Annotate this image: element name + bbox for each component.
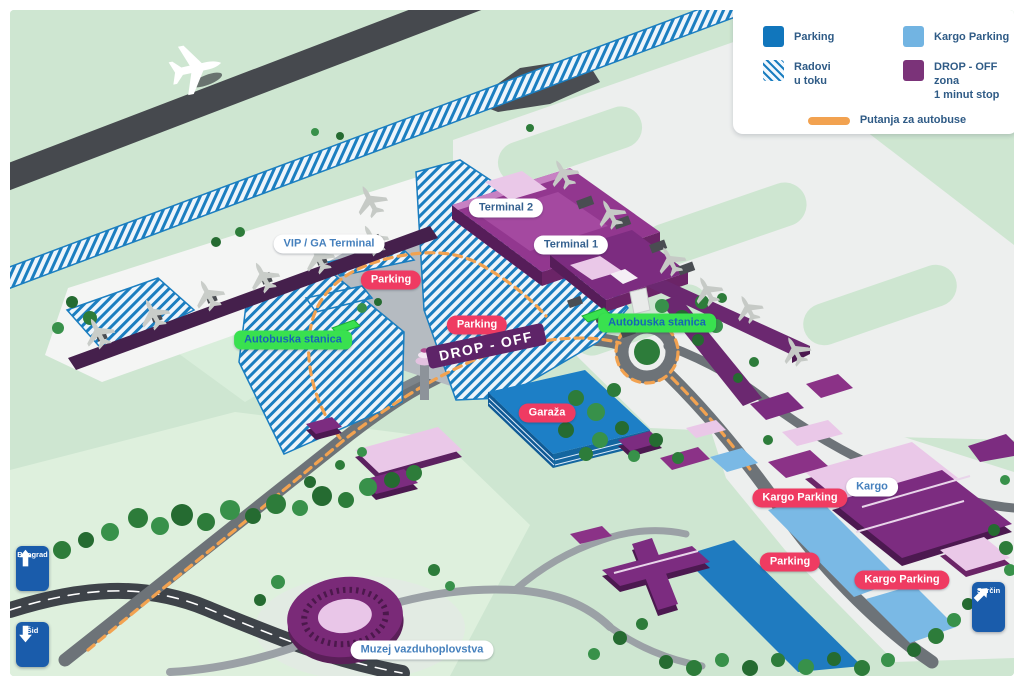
up-arrow-icon [16, 546, 35, 570]
kargo-label: Kargo [846, 478, 898, 497]
map-legend: Parking Kargo Parking Radovi u toku DROP… [733, 10, 1014, 134]
kargo-parking-swatch-icon [903, 26, 924, 47]
garage-label: Garaža [519, 404, 576, 423]
museum-label: Muzej vazduhoplovstva [351, 641, 494, 660]
parking-west-label: Parking [361, 271, 421, 290]
airport-map-page: { "legend": { "items": [ {"label": "Park… [0, 0, 1024, 689]
legend-dropoff-label: DROP - OFF zona 1 minut stop [934, 60, 1011, 102]
legend-parking-label: Parking [794, 26, 834, 45]
construction-swatch-icon [763, 60, 784, 81]
legend-radovi-label: Radovi u toku [794, 60, 831, 89]
kargo-parking-south-label: Kargo Parking [854, 571, 949, 590]
legend-item-radovi: Radovi u toku [763, 60, 903, 102]
legend-kargo-parking-label: Kargo Parking [934, 26, 1009, 45]
dropoff-swatch-icon [903, 60, 924, 81]
airport-map: VIP / GA Terminal Terminal 2 Terminal 1 … [10, 10, 1014, 676]
bus-stop-east-label: Autobuska stanica [598, 314, 716, 333]
legend-bus-route-label: Putanja za autobuse [860, 113, 966, 128]
legend-item-bus-route: Putanja za autobuse [763, 113, 1011, 128]
sign-beograd: Beograd [16, 546, 49, 591]
vip-ga-terminal-label: VIP / GA Terminal [274, 235, 385, 254]
bus-stop-west-label: Autobuska stanica [234, 331, 352, 350]
terminal-2-label: Terminal 2 [469, 199, 543, 218]
sign-surcin: Surčin [972, 582, 1005, 632]
legend-item-dropoff: DROP - OFF zona 1 minut stop [903, 60, 1011, 102]
sign-sid: Šid [16, 622, 49, 667]
terminal-1-label: Terminal 1 [534, 236, 608, 255]
legend-item-parking: Parking [763, 26, 903, 47]
kargo-parking-north-label: Kargo Parking [752, 489, 847, 508]
bus-route-line-icon [808, 117, 850, 125]
legend-item-kargo-parking: Kargo Parking [903, 26, 1011, 47]
parking-south-label: Parking [760, 553, 820, 572]
parking-swatch-icon [763, 26, 784, 47]
down-arrow-icon [16, 622, 35, 646]
